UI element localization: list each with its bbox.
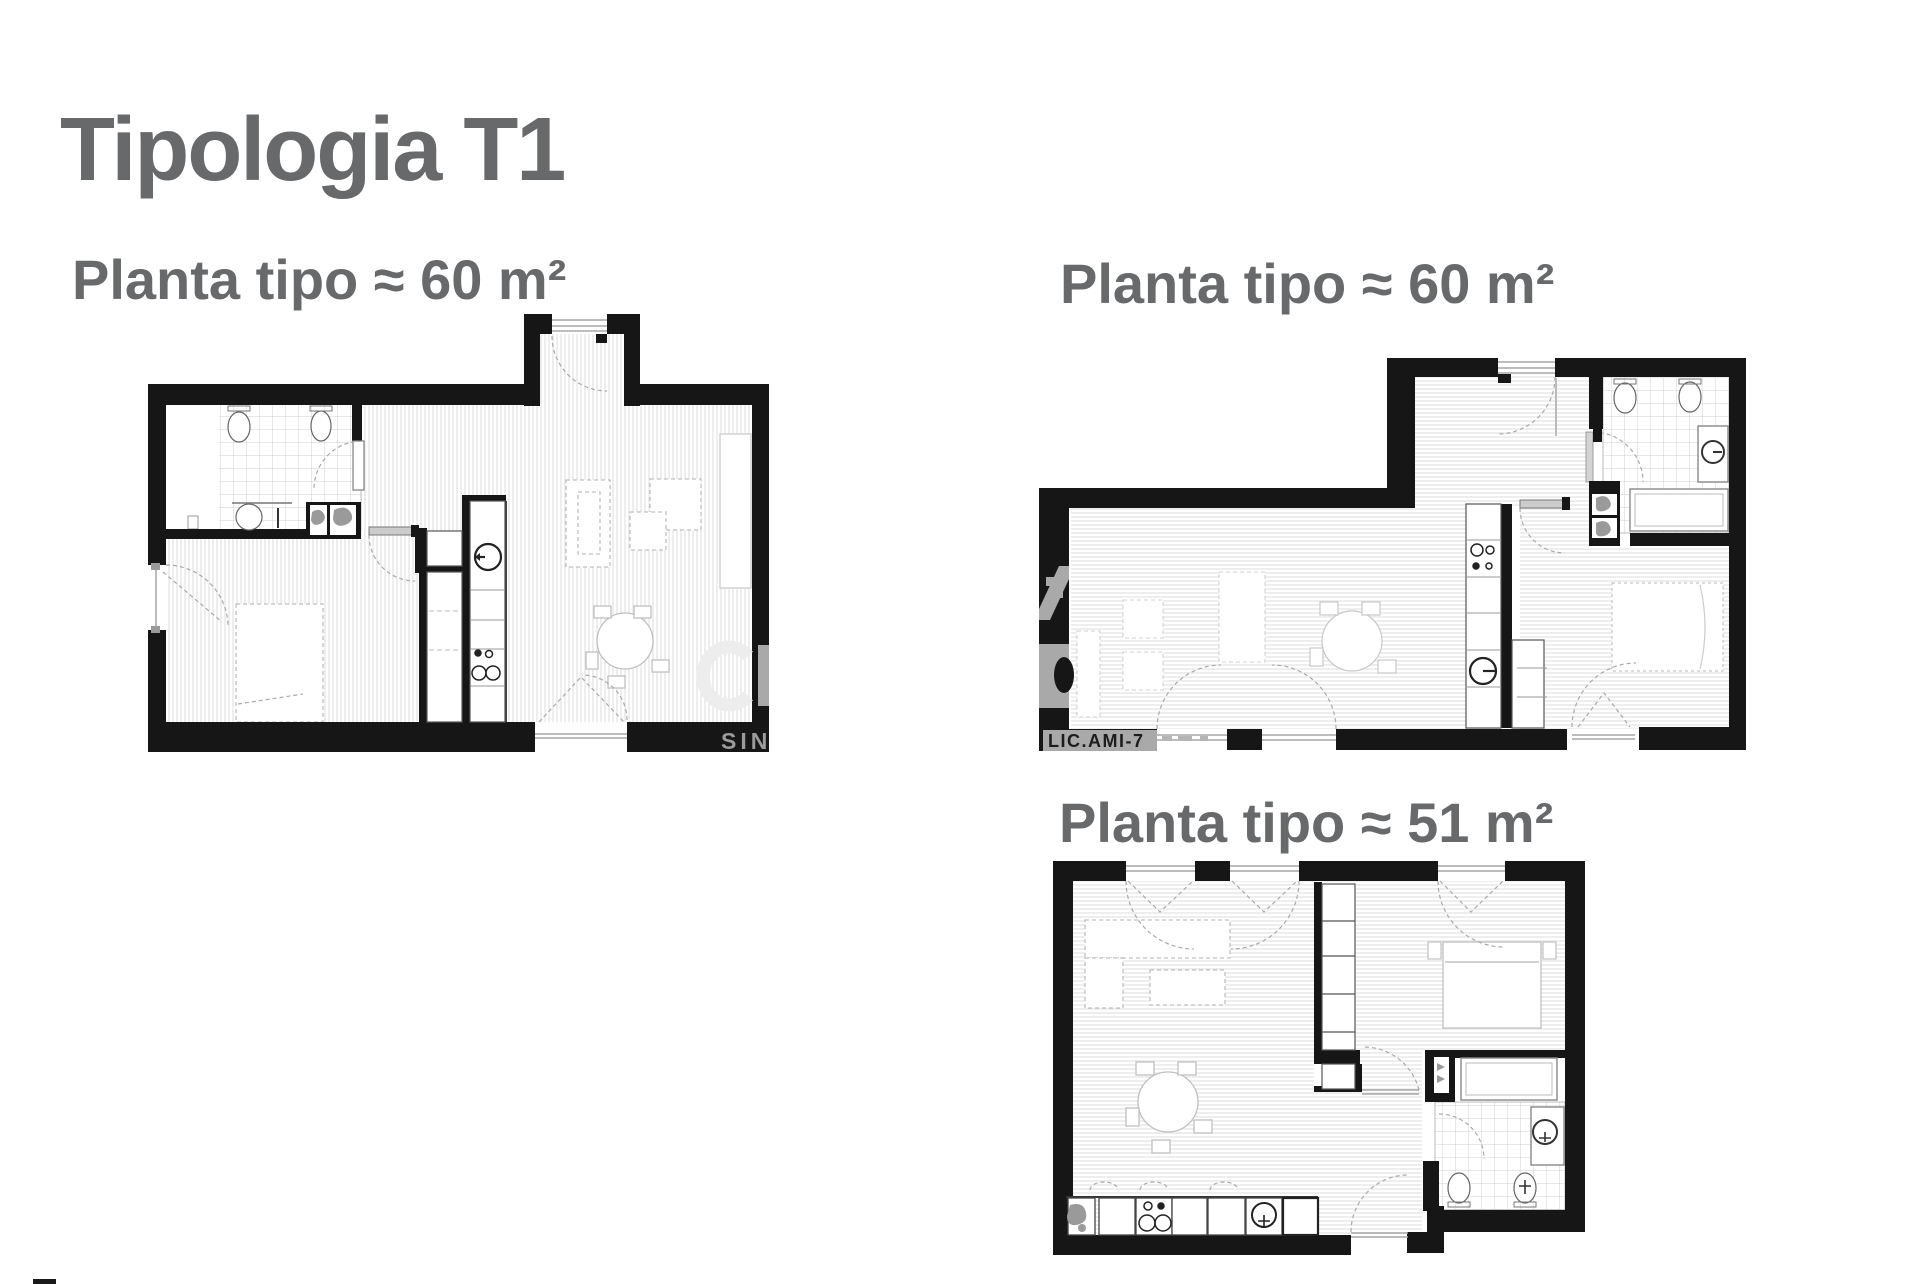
svg-text:LIC.AMI-7: LIC.AMI-7 [1048, 731, 1145, 751]
svg-text:SIN: SIN [721, 728, 771, 754]
